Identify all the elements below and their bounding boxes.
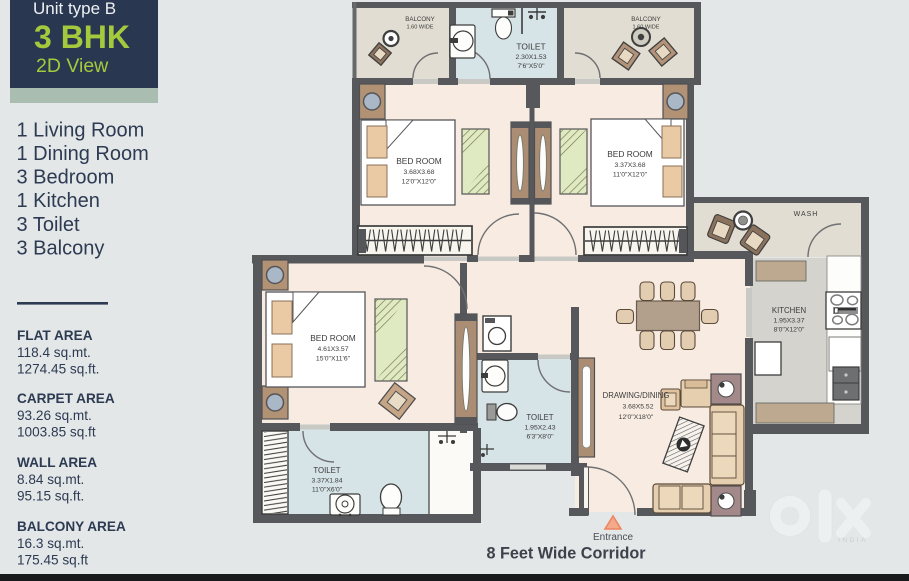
svg-text:BED ROOM: BED ROOM [396,156,442,166]
svg-text:2D View: 2D View [36,55,109,77]
svg-text:TOILET: TOILET [313,466,340,475]
svg-text:1.60 WIDE: 1.60 WIDE [406,25,433,31]
svg-text:3 Toilet: 3 Toilet [17,214,80,236]
svg-text:BALCONY: BALCONY [405,16,435,23]
svg-text:15'0"X11'6": 15'0"X11'6" [316,356,351,363]
svg-text:4.61X3.57: 4.61X3.57 [318,346,349,353]
svg-text:WALL AREA: WALL AREA [17,455,97,470]
svg-text:INDIA: INDIA [838,537,868,544]
svg-text:11'0"X6'0": 11'0"X6'0" [312,487,343,494]
svg-text:3.68X3.68: 3.68X3.68 [404,169,435,176]
svg-text:3 BHK: 3 BHK [34,19,130,55]
svg-text:175.45 sq.ft: 175.45 sq.ft [17,553,88,568]
svg-text:3 Balcony: 3 Balcony [17,238,105,260]
svg-text:8 Feet Wide Corridor: 8 Feet Wide Corridor [486,545,646,563]
svg-text:KITCHEN: KITCHEN [772,306,806,315]
svg-text:TOILET: TOILET [526,413,553,422]
svg-text:2.30X1.53: 2.30X1.53 [516,54,547,61]
svg-text:7'6"X5'0": 7'6"X5'0" [517,63,545,70]
svg-text:12'0"X18'0": 12'0"X18'0" [619,414,654,421]
svg-text:1.95X2.43: 1.95X2.43 [525,425,556,432]
svg-text:1.95X3.37: 1.95X3.37 [774,318,805,325]
svg-text:BALCONY AREA: BALCONY AREA [17,519,126,534]
svg-text:3.68X5.52: 3.68X5.52 [623,404,654,411]
svg-text:1 Dining Room: 1 Dining Room [17,143,149,165]
svg-text:6'3"X8'0": 6'3"X8'0" [526,434,554,441]
svg-text:CARPET AREA: CARPET AREA [17,391,115,406]
svg-text:1003.85 sq.ft: 1003.85 sq.ft [17,425,96,440]
svg-text:BED ROOM: BED ROOM [310,333,356,343]
svg-text:WASH: WASH [794,211,819,218]
svg-text:11'0"X12'0": 11'0"X12'0" [613,172,648,179]
svg-text:FLAT AREA: FLAT AREA [17,328,93,343]
svg-text:BED ROOM: BED ROOM [607,149,653,159]
svg-text:DRAWING/DINING: DRAWING/DINING [603,391,670,400]
svg-text:1 Living Room: 1 Living Room [17,120,145,142]
svg-text:Unit type B: Unit type B [33,0,116,18]
svg-text:3 Bedroom: 3 Bedroom [17,167,115,189]
svg-text:8.84 sq.mt.: 8.84 sq.mt. [17,472,84,487]
svg-text:1.60 WIDE: 1.60 WIDE [632,25,659,31]
svg-text:Entrance: Entrance [593,532,633,543]
svg-text:93.26 sq.mt.: 93.26 sq.mt. [17,408,92,423]
svg-text:118.4 sq.mt.: 118.4 sq.mt. [17,345,91,360]
svg-text:16.3 sq.mt.: 16.3 sq.mt. [17,536,84,551]
svg-text:95.15 sq.ft.: 95.15 sq.ft. [17,489,84,504]
svg-text:12'0"X12'0": 12'0"X12'0" [402,179,437,186]
svg-text:1 Kitchen: 1 Kitchen [17,190,100,212]
svg-text:TOILET: TOILET [516,42,545,52]
svg-text:3.37X1.84: 3.37X1.84 [312,478,343,485]
svg-text:3.37X3.68: 3.37X3.68 [615,162,646,169]
svg-text:8'0"X12'0": 8'0"X12'0" [774,327,805,334]
svg-text:BALCONY: BALCONY [631,16,661,23]
svg-text:1274.45 sq.ft.: 1274.45 sq.ft. [17,362,99,377]
